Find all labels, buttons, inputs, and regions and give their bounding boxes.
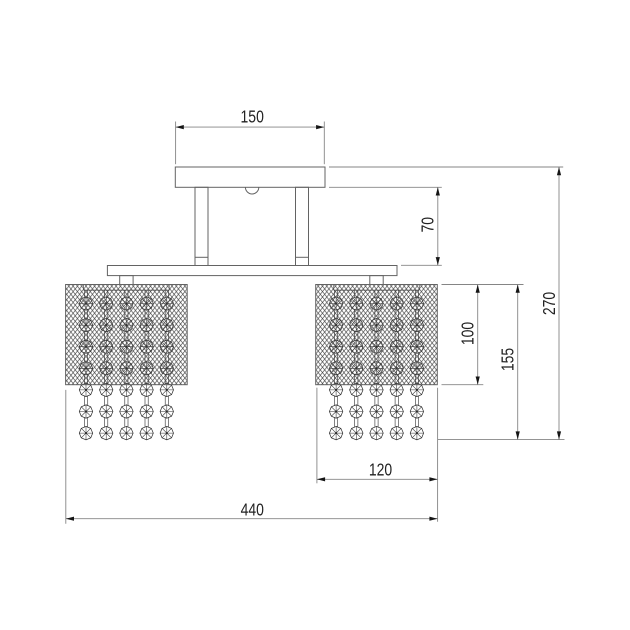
svg-text:150: 150	[241, 107, 264, 127]
svg-text:70: 70	[418, 217, 438, 233]
svg-text:270: 270	[539, 292, 559, 315]
svg-text:120: 120	[369, 460, 392, 480]
svg-text:100: 100	[458, 322, 478, 345]
svg-text:440: 440	[241, 500, 264, 520]
svg-text:155: 155	[498, 348, 518, 371]
